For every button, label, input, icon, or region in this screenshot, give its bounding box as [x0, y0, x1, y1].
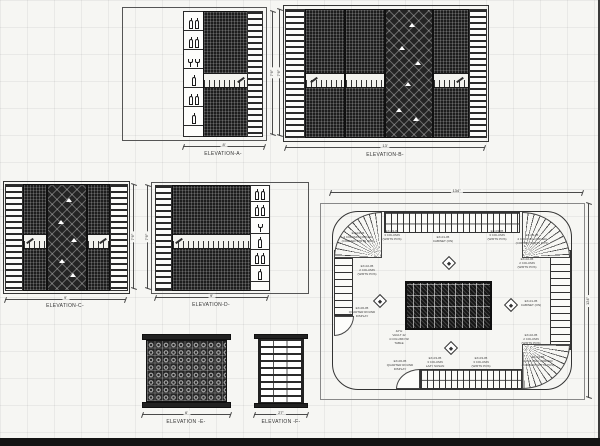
display-shelf [184, 12, 204, 31]
elevation-f-title: ELEVATION -F- [231, 419, 331, 425]
plan-annotation: EX-03-05 3 COLUMN (W/RTN POS) [372, 230, 412, 242]
wine-bottle-icon [195, 20, 199, 29]
wine-bottle-icon [192, 115, 196, 124]
wine-bottle-icon [195, 39, 199, 48]
tabletop-band [346, 73, 384, 88]
plan-annotation: 42"H VAULT 42 4 COLUMN W/ TABLE [384, 330, 414, 346]
display-shelf [251, 202, 269, 218]
elevation-f-width-dimension: 27" [254, 414, 308, 415]
elevation-f-base [254, 403, 308, 408]
elevation-b-horizontal-rack-left [285, 9, 305, 138]
wine-bottle-icon [255, 255, 259, 264]
elevation-b-bottle-racking [305, 9, 345, 138]
elevation-e-base [142, 402, 231, 408]
elevation-c-bottle-racking [87, 184, 110, 291]
sheet-bottom-edge [0, 438, 600, 446]
tabletop-band [88, 234, 109, 249]
bottle-stack-icon [70, 273, 76, 277]
plan-center-island-rack [405, 281, 492, 330]
plan-annotation: EX-04-05 4 COLUMN CORNER (CORNER W/RTN P… [518, 356, 558, 368]
dimension-text: 134" [450, 189, 462, 193]
plan-annotation: EX-02-05 2 COLUMN (W/RTN POS) [507, 258, 547, 270]
angled-display-icon [456, 77, 464, 83]
tabletop-band [434, 73, 468, 88]
bottle-stack-icon [58, 220, 64, 224]
display-shelf [251, 250, 269, 266]
elevation-d-width-dimension: 9' [155, 297, 268, 298]
elevation-e-bin-grid [146, 340, 227, 402]
wine-bottle-icon [261, 191, 265, 200]
dimension-text: 8' [221, 143, 228, 147]
plan-height-dimension: 124" [588, 203, 589, 398]
dimension-text: 6' [183, 411, 190, 415]
display-shelf [184, 88, 204, 107]
bottle-stack-icon [399, 46, 405, 50]
bottle-stack-icon [71, 238, 77, 242]
plan-annotation: EX-06-05 QUARTER ROUND DISPLAY [342, 307, 382, 319]
tabletop-band [24, 234, 46, 249]
elevation-b-horizontal-rack-right [469, 9, 487, 138]
elevation-e-title: ELEVATION -E- [136, 419, 236, 425]
tabletop-band [306, 73, 344, 88]
display-shelf [184, 107, 204, 126]
elevation-c-title: ELEVATION-C- [15, 303, 115, 309]
elevation-a-height-dimension: 7'6" [272, 11, 273, 135]
wine-bottle-icon [195, 96, 199, 105]
plan-annotation: EX-03-05 3 COLUMN LAZY SUSAN [415, 357, 455, 369]
elevation-d-height-dimension: 7'6" [147, 185, 148, 289]
wine-bottle-icon [189, 20, 193, 29]
dimension-text: 9' [208, 294, 215, 298]
elevation-d-title: ELEVATION-D- [161, 302, 261, 308]
elevation-b-height-dimension: 7'6" [279, 9, 280, 136]
bottle-stack-icon [409, 23, 415, 27]
bottle-stack-icon [66, 198, 72, 202]
elevation-b-width-dimension: 13' [285, 147, 485, 148]
dimension-text: 7'6" [277, 67, 281, 78]
elevation-c-horizontal-rack-left [5, 184, 23, 291]
wine-bottle-icon [255, 191, 259, 200]
plan-annotation: EX-01-05 CABINET (ON) [511, 300, 551, 308]
wine-bottle-icon [255, 207, 259, 216]
tabletop-band [173, 234, 251, 249]
wine-glass-icon [188, 59, 193, 67]
elevation-a-bottle-racking [203, 11, 249, 137]
bottle-stack-icon [413, 117, 419, 121]
dimension-text: 7'6" [131, 231, 135, 242]
elevation-d-display-column [250, 185, 270, 291]
plan-annotation: EX-03-05 3 COLUMN (W/RTN POS) [461, 357, 501, 369]
elevation-a-display-column [183, 11, 205, 137]
elevation-d-horizontal-rack [155, 185, 172, 291]
angled-display-icon [310, 77, 318, 83]
elevation-c-height-dimension: 7'6" [133, 184, 134, 289]
elevation-a-title: ELEVATION-A- [173, 151, 273, 157]
dimension-text: 124" [586, 294, 590, 306]
cad-drawing-sheet: 7'6" 8' ELEVATION-A- 7'6" 13' ELEVATION-… [0, 0, 600, 446]
plan-annotation: EX-01-05 CABINET (ON) [423, 236, 463, 244]
elevation-d-bottle-racking [172, 185, 252, 291]
plan-annotation: EX-06-05 QUARTER ROUND DISPLAY [380, 360, 420, 372]
angled-display-icon [26, 238, 34, 244]
wine-bottle-icon [189, 96, 193, 105]
plan-bottom-wall-rack [420, 369, 522, 389]
elevation-c-diamond-bins [47, 184, 87, 291]
wine-bottle-icon [261, 255, 265, 264]
plan-annotation: EX-03-05 3 COLUMN (W/RTN POS) [477, 230, 517, 242]
angled-display-icon [175, 238, 183, 244]
plan-annotation: EX-02-05 2 COLUMN (W/RTN POS) [511, 334, 551, 346]
elevation-a-width-dimension: 8' [183, 146, 265, 147]
angled-display-icon [237, 77, 245, 83]
display-shelf [184, 50, 204, 69]
display-shelf [251, 234, 269, 250]
display-shelf [184, 31, 204, 50]
bottle-stack-icon [396, 108, 402, 112]
elevation-a-horizontal-rack [247, 11, 263, 137]
wine-bottle-icon [258, 239, 262, 248]
display-shelf [251, 266, 269, 282]
plan-annotation: EX-04-05 4 COLUMN CORNER (CORNER W/RTN P… [512, 234, 552, 246]
tabletop-band [204, 73, 248, 88]
elevation-f-shelf-tower [258, 339, 304, 403]
dimension-text: 13' [380, 144, 389, 148]
elevation-c-bottle-racking [23, 184, 47, 291]
dimension-text: 9' [62, 296, 69, 300]
elevation-e-width-dimension: 6' [142, 414, 231, 415]
wine-bottle-icon [189, 39, 193, 48]
plan-right-wall-rack [550, 250, 571, 350]
dimension-text: 27" [276, 411, 286, 415]
angled-display-icon [99, 238, 107, 244]
dimension-text: 7'6" [270, 68, 274, 79]
display-shelf [251, 186, 269, 202]
elevation-b-diamond-bins [385, 9, 433, 138]
plan-annotation: EX-02-05 2 COLUMN (W/RTN POS) [347, 265, 387, 277]
bottle-stack-icon [405, 82, 411, 86]
elevation-c-width-dimension: 9' [5, 299, 126, 300]
wine-bottle-icon [192, 77, 196, 86]
display-shelf [251, 218, 269, 234]
elevation-b-bottle-racking [345, 9, 385, 138]
wine-bottle-icon [258, 271, 262, 280]
display-shelf [184, 69, 204, 88]
dimension-text: 7'6" [145, 232, 149, 243]
elevation-b-title: ELEVATION-B- [335, 152, 435, 158]
wine-glass-icon [258, 224, 263, 232]
wine-bottle-icon [261, 207, 265, 216]
wine-glass-icon [195, 59, 200, 67]
elevation-c-horizontal-rack-right [110, 184, 128, 291]
bottle-stack-icon [59, 259, 65, 263]
bottle-stack-icon [415, 61, 421, 65]
elevation-b-bottle-racking [433, 9, 469, 138]
plan-width-dimension: 134" [330, 192, 583, 193]
